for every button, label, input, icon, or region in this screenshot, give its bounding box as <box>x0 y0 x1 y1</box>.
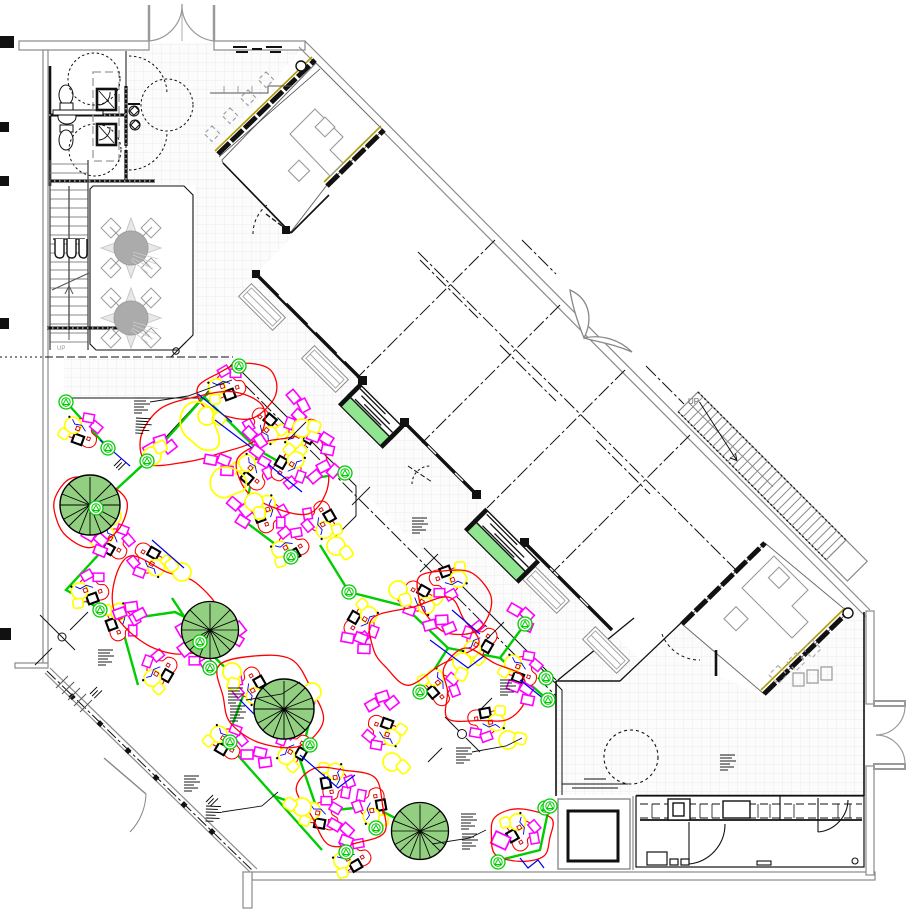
svg-text:UP: UP <box>688 397 699 406</box>
svg-text:UP: UP <box>57 346 65 352</box>
